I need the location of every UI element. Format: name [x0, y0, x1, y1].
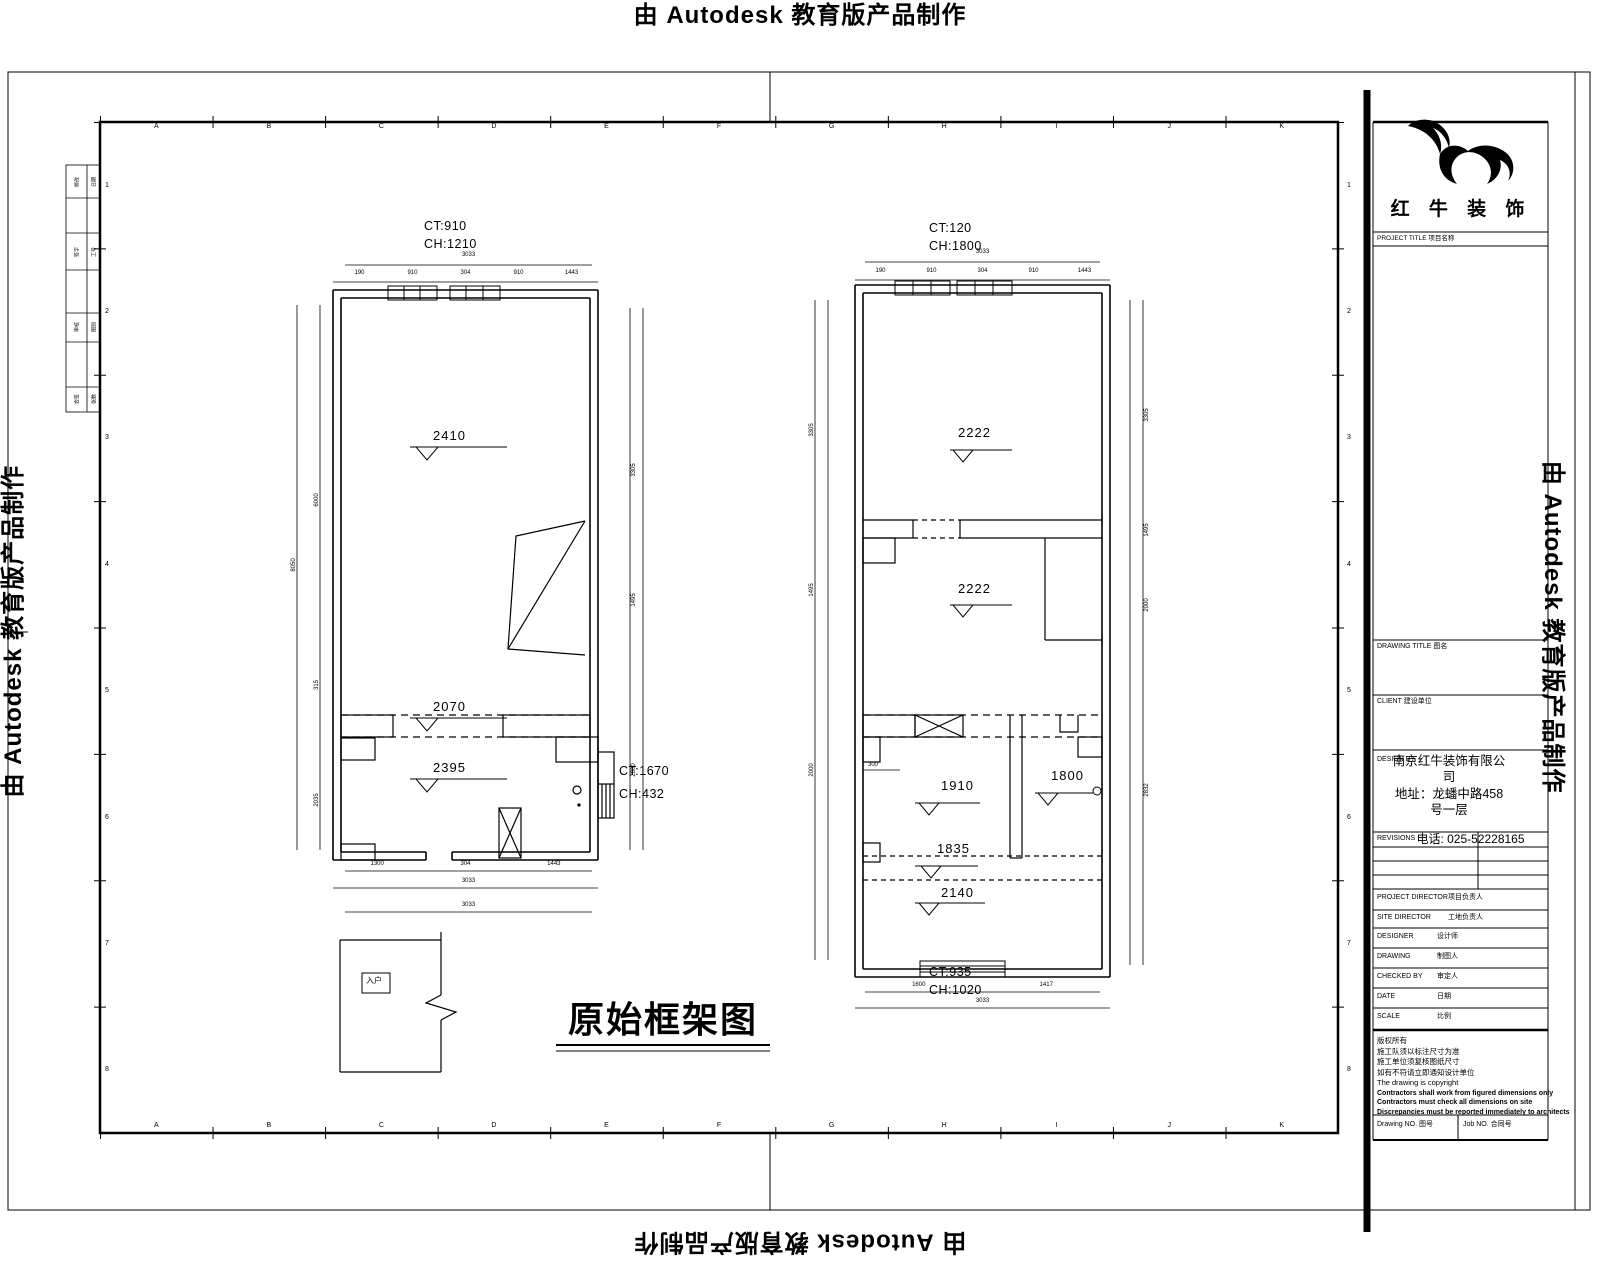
tb-drawing-no-label: Drawing NO. 图号: [1377, 1121, 1433, 1129]
tb-note-line: 如有不符请立即通知设计单位: [1377, 1068, 1570, 1079]
grid-row: 7: [105, 880, 109, 1006]
grid-row: 2: [105, 248, 109, 374]
grid-letter: B: [213, 1122, 326, 1129]
rp-dim-top-segments: 1909103049101443: [855, 268, 1110, 274]
grid-letters-bottom: ABCDEFGHIJK: [100, 1122, 1338, 1129]
grid-letter: I: [1000, 123, 1113, 130]
dim-value: 1417: [983, 982, 1111, 988]
grid-letter: G: [775, 1122, 888, 1129]
grid-letter: K: [1225, 1122, 1338, 1129]
lp-level-beam: 2070: [433, 700, 466, 714]
grid-row: 3: [105, 375, 109, 501]
dim-value: 304: [421, 861, 509, 867]
balcony-linework: [340, 932, 456, 1072]
grid-letter: D: [438, 123, 551, 130]
rp-bottom-ct-label: CT:935: [929, 966, 972, 980]
cad-sheet: { "watermark": {"text": "由 Autodesk 教育版产…: [0, 0, 1600, 1280]
grid-rows-right: 12345678: [1344, 122, 1354, 1133]
dim-value: 910: [1008, 268, 1059, 274]
dim-value: 190: [855, 268, 906, 274]
dim-value: 1600: [855, 982, 983, 988]
rp-dim-bottom-total: 3033: [865, 998, 1100, 1005]
rp-dim-right-seg: 3305: [1144, 408, 1150, 421]
grid-letter: H: [888, 123, 1001, 130]
lp-side-ch-label: CH:432: [619, 788, 664, 802]
dim-value: 910: [906, 268, 957, 274]
lp-level-top: 2410: [433, 429, 466, 443]
rp-walls: [855, 285, 1110, 977]
rp-dim-bottom-segments: 16001417: [855, 982, 1110, 988]
tb-row-en: DRAWING: [1377, 953, 1411, 961]
tb-phone: 电话: 025-52228165: [1398, 833, 1543, 846]
rp-dim-right-seg: 2000: [1144, 598, 1150, 611]
lp-dim-bottom-total2: 3033: [345, 902, 592, 909]
rp-level-room3: 1910: [941, 779, 974, 793]
grid-letter: D: [438, 1122, 551, 1129]
rp-dim-left-seg: 3305: [809, 423, 815, 436]
tb-row-en: PROJECT DIRECTOR: [1377, 894, 1448, 902]
watermark-bottom: 由 Autodesk 教育版产品制作: [0, 1228, 1600, 1254]
dim-value: 304: [439, 270, 492, 276]
tb-row-zh: 比例: [1437, 1013, 1451, 1021]
grid-letter: F: [663, 123, 776, 130]
lp-dim-left-seg: 6000: [314, 493, 320, 506]
right-plan-linework: [815, 262, 1143, 1008]
sheet-title: 原始框架图: [556, 1000, 770, 1040]
lp-ch-label: CH:1210: [424, 238, 477, 252]
lp-level-mid: 2395: [433, 761, 466, 775]
grid-row: 1: [105, 122, 109, 248]
title-underline: [556, 1045, 770, 1051]
rp-dim-right-seg: 2832: [1144, 783, 1150, 796]
grid-letter: K: [1225, 123, 1338, 130]
grid-row: 8: [1347, 1007, 1351, 1133]
bull-logo: [1408, 120, 1513, 184]
tb-note-line: Discrepancies must be reported immediate…: [1377, 1108, 1570, 1118]
strip-cell: 工号: [91, 247, 98, 257]
tb-notes: 版权所有 施工队须以标注尺寸为准 施工单位须复核图纸尺寸 如有不符请立即通知设计…: [1377, 1036, 1570, 1118]
dim-value: 1300: [333, 861, 421, 867]
dim-value: 1443: [545, 270, 598, 276]
lp-level-markers: [410, 447, 507, 792]
grid-letter: I: [1000, 1122, 1113, 1129]
tb-row-zh: 工地负责人: [1448, 914, 1483, 922]
tb-row-zh: 设计师: [1437, 933, 1458, 941]
dim-value: 304: [957, 268, 1008, 274]
rp-dim-right-seg: 1495: [1144, 523, 1150, 536]
left-plan-linework: [297, 265, 643, 912]
grid-row: 4: [105, 501, 109, 627]
grid-letter: G: [775, 123, 888, 130]
lp-dim-top-total: 3033: [345, 252, 592, 259]
tb-company-block: 南京红牛装饰有限公司 地址：龙蟠中路458号一层: [1391, 753, 1507, 818]
strip-cell: 图别: [91, 322, 98, 332]
watermark-right: 由 Autodesk 教育版产品制作: [1539, 277, 1565, 977]
watermark-top: 由 Autodesk 教育版产品制作: [0, 3, 1600, 29]
linework-canvas: [0, 0, 1600, 1280]
grid-row: 8: [105, 1007, 109, 1133]
tb-note-line: Contractors shall work from figured dime…: [1377, 1089, 1570, 1099]
grid-row: 1: [1347, 122, 1351, 248]
rp-level-room3b: 1800: [1051, 769, 1084, 783]
grid-letter: B: [213, 123, 326, 130]
lp-dim-bottom-segments: 13003041443: [333, 861, 598, 867]
tb-row-zh: 项目负责人: [1448, 894, 1483, 902]
tb-note-line: 版权所有: [1377, 1036, 1570, 1047]
lp-dim-right-seg: 1495: [631, 593, 637, 606]
grid-row: 6: [1347, 754, 1351, 880]
rp-level-room2: 2222: [958, 582, 991, 596]
rp-level-room1: 2222: [958, 426, 991, 440]
dim-value: 910: [492, 270, 545, 276]
lp-side-ct-label: CT:1670: [619, 765, 669, 779]
lp-ct-label: CT:910: [424, 220, 467, 234]
grid-row: 5: [1347, 628, 1351, 754]
tb-row-en: DATE: [1377, 993, 1395, 1001]
grid-row: 6: [105, 754, 109, 880]
dim-value: 910: [386, 270, 439, 276]
tb-job-no-label: Job NO. 合同号: [1463, 1121, 1512, 1129]
grid-letter: J: [1113, 123, 1226, 130]
grid-row: 5: [105, 628, 109, 754]
grid-row: 3: [1347, 375, 1351, 501]
grid-letter: A: [100, 1122, 213, 1129]
lp-dim-bottom-total: 3033: [345, 878, 592, 885]
rp-dim-left-seg: 1495: [809, 583, 815, 596]
lp-dim-left-seg: 2035: [314, 793, 320, 806]
tb-company: 南京红牛装饰有限公司: [1391, 753, 1507, 786]
balcony-label: 入户: [366, 977, 382, 986]
rp-dim-top-total: 3033: [865, 249, 1100, 256]
tb-address: 地址：龙蟠中路458号一层: [1391, 786, 1507, 819]
grid-letter: J: [1113, 1122, 1226, 1129]
rp-level-beam: 1835: [937, 842, 970, 856]
rp-interior: [863, 520, 1102, 880]
lp-interior: [341, 521, 614, 860]
watermark-left: 由 Autodesk 教育版产品制作: [1, 281, 27, 981]
lp-dim-left-total: 8050: [291, 558, 297, 571]
lp-dim-top-segments: 1909103049101443: [333, 270, 598, 276]
rp-windows: [895, 281, 1012, 977]
grid-letter: H: [888, 1122, 1001, 1129]
tb-drawing-title-label: DRAWING TITLE 图名: [1377, 643, 1447, 651]
tb-note-line: 施工单位须复核图纸尺寸: [1377, 1057, 1570, 1068]
tb-row-zh: 日期: [1437, 993, 1451, 1001]
tb-row-zh: 制图人: [1437, 953, 1458, 961]
strip-cell: 审核: [74, 322, 81, 332]
tb-note-line: Contractors must check all dimensions on…: [1377, 1098, 1570, 1108]
strip-cell: 修改: [74, 177, 81, 187]
grid-letter: C: [325, 1122, 438, 1129]
dim-value: 190: [333, 270, 386, 276]
dim-value: 1443: [510, 861, 598, 867]
grid-row: 7: [1347, 880, 1351, 1006]
tb-note-line: The drawing is copyright: [1377, 1078, 1570, 1089]
rp-ct-label: CT:120: [929, 222, 972, 236]
tb-row-en: DESIGNER: [1377, 933, 1414, 941]
dim-value: 1443: [1059, 268, 1110, 274]
strip-cell: 签字: [74, 247, 81, 257]
rp-dim-lines: [815, 262, 1143, 1008]
lp-dim-right-seg: 3305: [631, 463, 637, 476]
drawing-frame: [100, 122, 1338, 1133]
strip-cell: 张数: [91, 394, 98, 404]
tb-client-label: CLIENT 建设单位: [1377, 698, 1432, 706]
grid-letter: E: [550, 1122, 663, 1129]
grid-row: 4: [1347, 501, 1351, 627]
tb-note-line: 施工队须以标注尺寸为准: [1377, 1047, 1570, 1058]
lp-dim-left-seg: 315: [314, 680, 320, 690]
lp-dim-lines: [297, 265, 643, 912]
tb-row-zh: 审定人: [1437, 973, 1458, 981]
brand-name: 红 牛 装 饰: [1378, 200, 1544, 221]
rp-dim-left-seg: 2000: [809, 763, 815, 776]
grid-row: 2: [1347, 248, 1351, 374]
strip-cell: 会签: [74, 394, 81, 404]
tb-row-en: SITE DIRECTOR: [1377, 914, 1431, 922]
grid-letter: A: [100, 123, 213, 130]
grid-rows-left: 12345678: [102, 122, 112, 1133]
grid-letters-top: ABCDEFGHIJK: [100, 123, 1338, 130]
grid-letter: E: [550, 123, 663, 130]
grid-letter: F: [663, 1122, 776, 1129]
tb-row-en: SCALE: [1377, 1013, 1400, 1021]
tb-project-row: PROJECT TITLE 项目名称: [1377, 235, 1454, 242]
tb-row-en: CHECKED BY: [1377, 973, 1423, 981]
strip-cell: 日期: [91, 177, 98, 187]
rp-small-dim: 300: [868, 762, 878, 769]
lp-dim-right-seg: 2000: [631, 763, 637, 776]
rp-level-room4: 2140: [941, 886, 974, 900]
grid-letter: C: [325, 123, 438, 130]
